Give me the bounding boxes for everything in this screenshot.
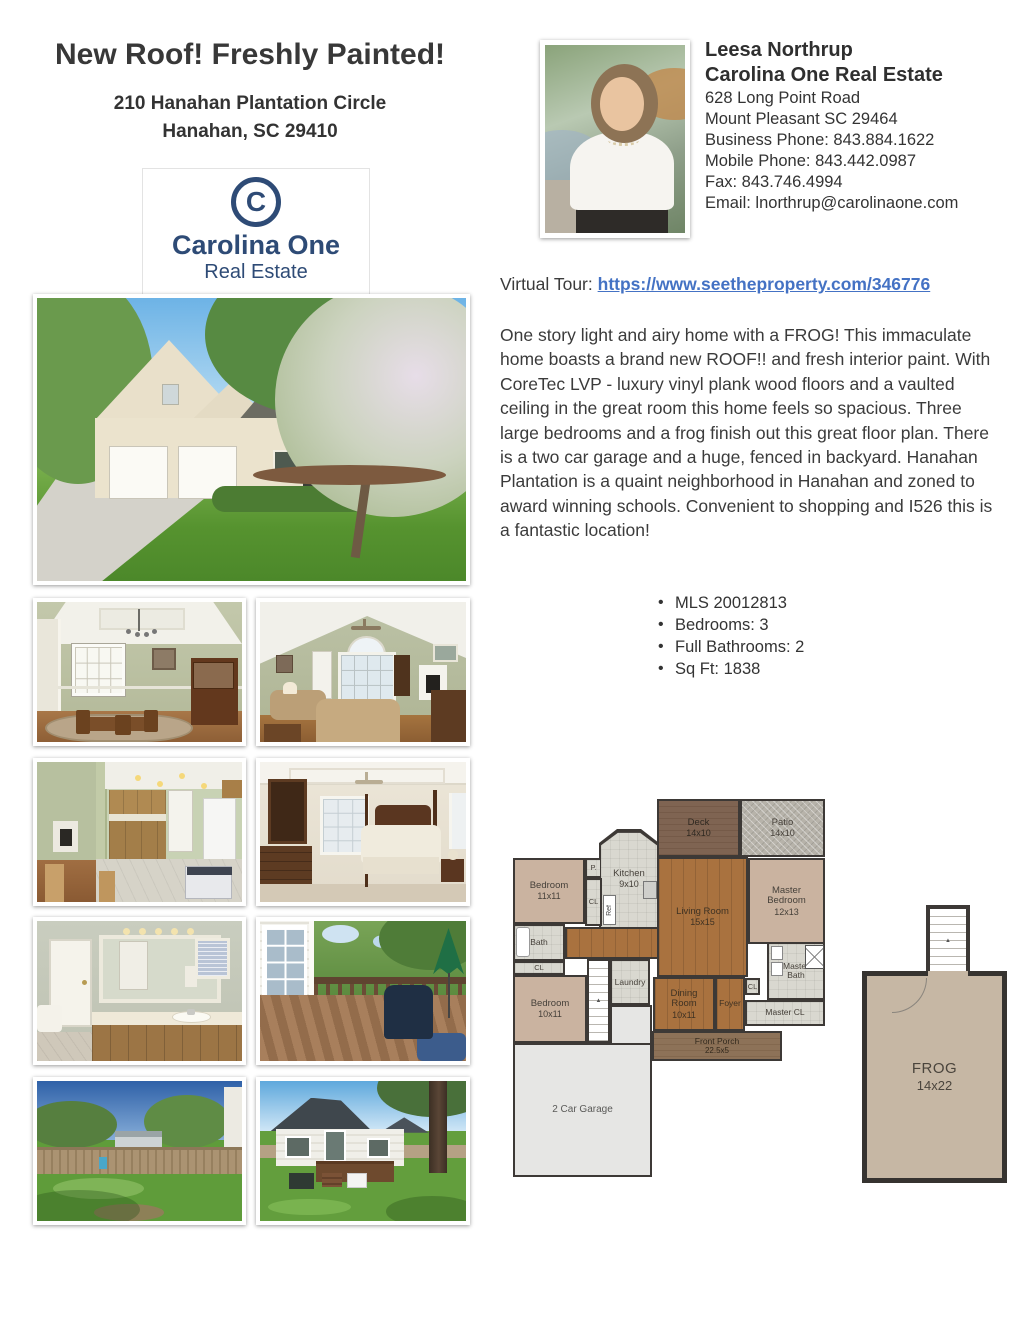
- brand-monogram-letter: C: [246, 186, 266, 218]
- vanity-cabinets: [92, 1025, 242, 1061]
- floorplan-garage-extension: [610, 1005, 652, 1045]
- room-label: P.: [590, 864, 596, 872]
- tree-trunk: [429, 1081, 448, 1173]
- property-address: 210 Hanahan Plantation Circle Hanahan, S…: [30, 90, 470, 146]
- virtual-tour-link[interactable]: https://www.seetheproperty.com/346776: [598, 274, 931, 294]
- page-title: New Roof! Freshly Painted!: [30, 38, 470, 72]
- room-label: Foyer: [719, 999, 741, 1009]
- room-size: 14x10: [686, 828, 711, 838]
- room-label: Laundry: [615, 977, 646, 988]
- coffee-table: [264, 724, 301, 742]
- stove-icon: [643, 881, 657, 899]
- photo-kitchen: [33, 758, 246, 906]
- floorplan-room-garage: 2 Car Garage: [513, 1043, 652, 1177]
- deck-stairs: [322, 1173, 343, 1187]
- room-size: 14x22: [917, 1078, 952, 1094]
- rear-window-2: [367, 1138, 390, 1157]
- grass-highlight: [268, 1199, 350, 1216]
- mirror: [268, 779, 307, 844]
- garage-door-1: [109, 446, 168, 499]
- floor: [37, 1032, 94, 1061]
- room-size: 14x10: [770, 828, 795, 838]
- photo-deck: [256, 917, 470, 1065]
- pantry-door: [168, 790, 193, 852]
- property-address-line2: Hanahan, SC 29410: [30, 118, 470, 146]
- sky-patch: [322, 925, 359, 943]
- grill: [384, 985, 433, 1038]
- countertop: [92, 1012, 242, 1025]
- agent-photo: [540, 40, 690, 238]
- floorplan-room-living: Living Room 15x15: [657, 857, 748, 977]
- room-label: Patio: [772, 818, 794, 829]
- wall-art: [152, 648, 177, 670]
- wall-art-right: [433, 644, 458, 662]
- flyer-page: New Roof! Freshly Painted! 210 Hanahan P…: [0, 0, 1024, 1325]
- photo-dining-room: [33, 598, 246, 746]
- bookshelf: [394, 655, 410, 696]
- floorplan-room-frog: FROG 14x22: [862, 971, 1007, 1183]
- tray-ceiling: [99, 608, 185, 630]
- vanity-lights: [123, 928, 130, 935]
- room-size: 10x11: [672, 1010, 696, 1020]
- patio-chairs: [289, 1173, 314, 1188]
- floorplan-room-master-closet: Master CL: [745, 1000, 825, 1026]
- detail-mls: MLS 20012813: [658, 592, 804, 614]
- room-label: Deck: [688, 818, 710, 829]
- photo-living-room: [256, 598, 470, 746]
- room-label: CL: [589, 898, 599, 906]
- bathtub-icon: [516, 927, 530, 957]
- ceiling-fan-icon: [355, 780, 383, 784]
- sink-icon-2: [771, 962, 783, 976]
- rear-window-1: [285, 1136, 312, 1158]
- agent-business-phone: Business Phone: 843.884.1622: [705, 130, 995, 151]
- mulch-bed: [253, 465, 446, 485]
- agent-company: Carolina One Real Estate: [705, 63, 995, 88]
- wall-window: [262, 925, 307, 998]
- virtual-tour-label: Virtual Tour:: [500, 274, 593, 294]
- photo-backyard: [33, 1077, 246, 1225]
- bed-skirt: [363, 857, 439, 874]
- room-size: 10x11: [538, 1009, 562, 1019]
- agent-mobile-phone: Mobile Phone: 843.442.0987: [705, 151, 995, 172]
- chair-1: [76, 710, 90, 734]
- chair-3: [144, 710, 158, 732]
- floorplan-room-closet-hall: CL: [513, 961, 565, 975]
- room-label: Kitchen: [613, 869, 645, 880]
- countertop: [109, 814, 166, 821]
- mirror-reflection-door: [119, 941, 148, 991]
- room-label: Master CL: [765, 1008, 804, 1018]
- frog-stairs: ▲: [926, 905, 970, 977]
- fan-stem: [365, 772, 368, 782]
- brand-subtitle: Real Estate: [143, 260, 369, 284]
- floorplan-room-master-bedroom: Master Bedroom 12x13: [748, 858, 825, 944]
- room-label: CL: [748, 983, 758, 991]
- carpet: [260, 884, 466, 902]
- window: [195, 938, 230, 979]
- chair-2: [115, 715, 131, 735]
- floorplan-room-dining: Dining Room 10x11: [653, 977, 715, 1031]
- floorplan-room-deck: Deck 14x10: [657, 799, 740, 857]
- agent-email: Email: lnorthrup@carolinaone.com: [705, 193, 995, 214]
- sofa-front: [316, 699, 400, 742]
- floorplan-room-bedroom2: Bedroom 10x11: [513, 975, 587, 1043]
- floorplan-hallway: [565, 927, 659, 959]
- chandelier-icon: [138, 609, 140, 631]
- agent-name: Leesa Northrup: [705, 38, 995, 63]
- sink-icon: [771, 946, 783, 960]
- tree-shadow: [386, 1196, 466, 1221]
- floorplan-stairs: ▲: [587, 959, 610, 1043]
- agent-info: Leesa Northrup Carolina One Real Estate …: [705, 38, 995, 214]
- refrigerator-icon: Ref: [603, 895, 616, 925]
- floorplan-front-porch: Front Porch 22.5x5: [652, 1031, 782, 1061]
- room-label: Bedroom: [531, 999, 570, 1010]
- tub: [37, 1005, 62, 1032]
- piano: [431, 690, 466, 742]
- trees: [37, 1101, 117, 1149]
- property-description: One story light and airy home with a FRO…: [500, 323, 1004, 543]
- nightstand: [441, 859, 464, 883]
- room-size: 15x15: [690, 917, 715, 927]
- ref-label: Ref: [606, 905, 613, 916]
- room-label: Front Porch: [695, 1037, 739, 1047]
- photo-exterior-front: [33, 294, 470, 585]
- photo-master-bedroom: [256, 758, 470, 906]
- railing: [314, 977, 466, 984]
- lower-cabinets: [109, 821, 166, 859]
- lamp: [448, 850, 458, 860]
- shower-icon: [805, 945, 824, 969]
- room-label: Dining Room: [661, 989, 707, 1010]
- blue-toy: [99, 1157, 107, 1169]
- fence: [37, 1147, 242, 1174]
- lamp: [283, 682, 297, 694]
- room-label: 2 Car Garage: [552, 1105, 613, 1116]
- detail-sqft: Sq Ft: 1838: [658, 658, 804, 680]
- floorplan-room-patio: Patio 14x10: [740, 799, 825, 857]
- faucet: [187, 1009, 195, 1015]
- towel: [185, 966, 197, 987]
- room-size: 22.5x5: [705, 1046, 729, 1056]
- floorplan-room-pantry: P.: [585, 858, 602, 878]
- wall-art-left: [276, 655, 292, 672]
- house-corner-right: [224, 1087, 242, 1151]
- floorplan-room-closet-kitchen: CL: [585, 878, 602, 926]
- virtual-tour-row: Virtual Tour: https://www.seetheproperty…: [500, 274, 1010, 295]
- room-label: Bedroom: [530, 881, 569, 892]
- upper-cabinets: [109, 790, 166, 814]
- room-label: CL: [534, 964, 544, 972]
- floorplan-room-bedroom1: Bedroom 11x11: [513, 858, 585, 924]
- main-windows: [338, 652, 396, 701]
- stairs-arrow-icon: ▲: [945, 938, 951, 944]
- floorplan-room-laundry: Laundry: [610, 959, 650, 1005]
- room-label: FROG: [912, 1060, 957, 1078]
- floorplan-main: Deck 14x10 Patio 14x10 Bedroom 11x11 P. …: [505, 785, 850, 1185]
- detail-bedrooms: Bedrooms: 3: [658, 614, 804, 636]
- right-upper-cabinet: [222, 780, 243, 798]
- floorplan-room-foyer: Foyer: [715, 977, 745, 1031]
- fridge: [203, 798, 236, 864]
- gable-window: [162, 384, 179, 405]
- photo-exterior-rear: [256, 1077, 470, 1225]
- room-label: Living Room: [676, 907, 729, 918]
- room-label: Bath: [530, 938, 548, 948]
- left-firebox: [60, 829, 72, 846]
- room-label: Master Bedroom: [761, 886, 813, 907]
- brand-monogram-icon: C: [231, 177, 281, 227]
- fan-stem: [363, 619, 366, 629]
- room-size: 9x10: [619, 879, 639, 889]
- umbrella-pole: [448, 973, 450, 1018]
- copier-top: [187, 867, 232, 875]
- agent-address-line1: 628 Long Point Road: [705, 88, 995, 109]
- wood-chair-2: [99, 871, 115, 902]
- brand-name: Carolina One: [143, 231, 369, 260]
- stairs-arrow-icon: ▲: [596, 998, 602, 1004]
- cooler: [347, 1173, 368, 1188]
- property-details-list: MLS 20012813 Bedrooms: 3 Full Bathrooms:…: [658, 592, 804, 680]
- frog-door-opening: [928, 971, 968, 977]
- photo-bathroom: [33, 917, 246, 1065]
- floorplan-frog: ▲ FROG 14x22: [862, 905, 1010, 1185]
- brand-logo: C Carolina One Real Estate: [142, 168, 370, 298]
- right-window: [449, 793, 466, 849]
- agent-fax: Fax: 843.746.4994: [705, 172, 995, 193]
- floorplan-room-closet-foyer: CL: [745, 978, 760, 995]
- agent-address-line2: Mount Pleasant SC 29464: [705, 109, 995, 130]
- cabinet-glass: [193, 662, 234, 689]
- detail-bathrooms: Full Bathrooms: 2: [658, 636, 804, 658]
- door-knob: [82, 980, 87, 985]
- room-size: 11x11: [537, 891, 560, 901]
- wood-chair: [45, 864, 63, 902]
- rear-window-tall: [324, 1130, 347, 1162]
- property-address-line1: 210 Hanahan Plantation Circle: [30, 90, 470, 118]
- room-size: 12x13: [774, 907, 799, 917]
